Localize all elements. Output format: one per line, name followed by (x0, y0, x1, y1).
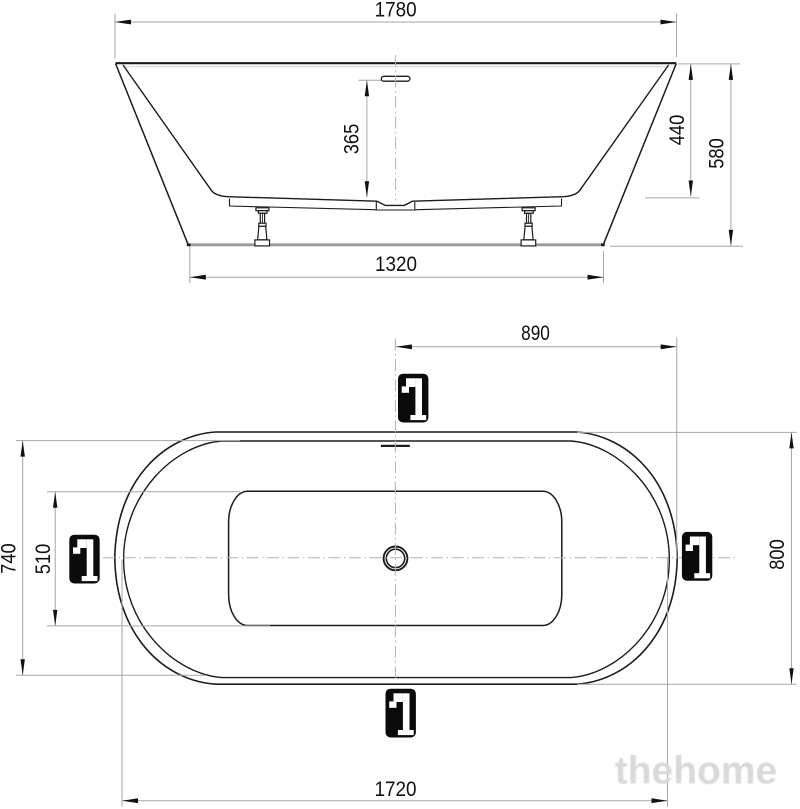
svg-text:365: 365 (340, 124, 363, 155)
svg-text:890: 890 (521, 323, 550, 346)
svg-text:440: 440 (666, 115, 689, 146)
svg-text:1720: 1720 (374, 778, 416, 801)
svg-text:1320: 1320 (375, 253, 417, 276)
svg-text:1780: 1780 (375, 0, 417, 22)
svg-text:580: 580 (706, 138, 729, 169)
svg-text:740: 740 (0, 543, 21, 574)
svg-text:thehome: thehome (615, 750, 778, 793)
svg-text:800: 800 (766, 539, 789, 570)
svg-text:510: 510 (32, 544, 55, 575)
